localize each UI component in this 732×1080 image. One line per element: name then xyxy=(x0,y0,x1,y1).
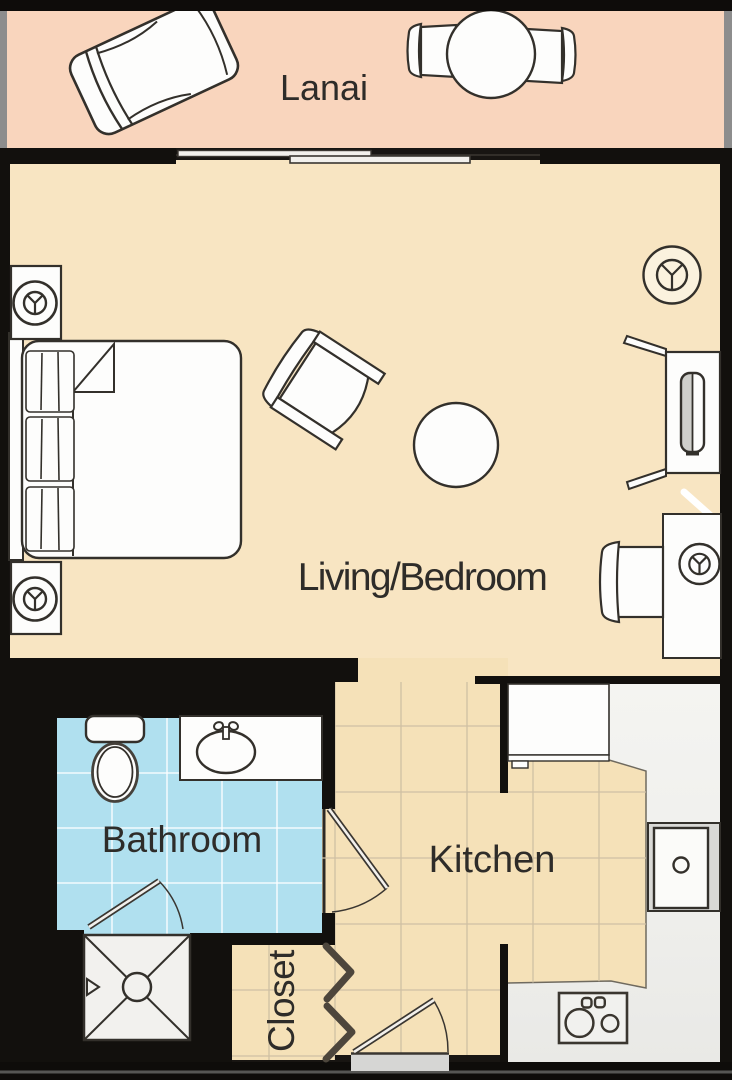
svg-text:Lanai: Lanai xyxy=(280,67,368,108)
svg-text:Living/Bedroom: Living/Bedroom xyxy=(298,556,547,599)
svg-text:Closet: Closet xyxy=(261,949,302,1052)
svg-text:Bathroom: Bathroom xyxy=(102,819,262,860)
svg-text:Kitchen: Kitchen xyxy=(429,839,556,881)
